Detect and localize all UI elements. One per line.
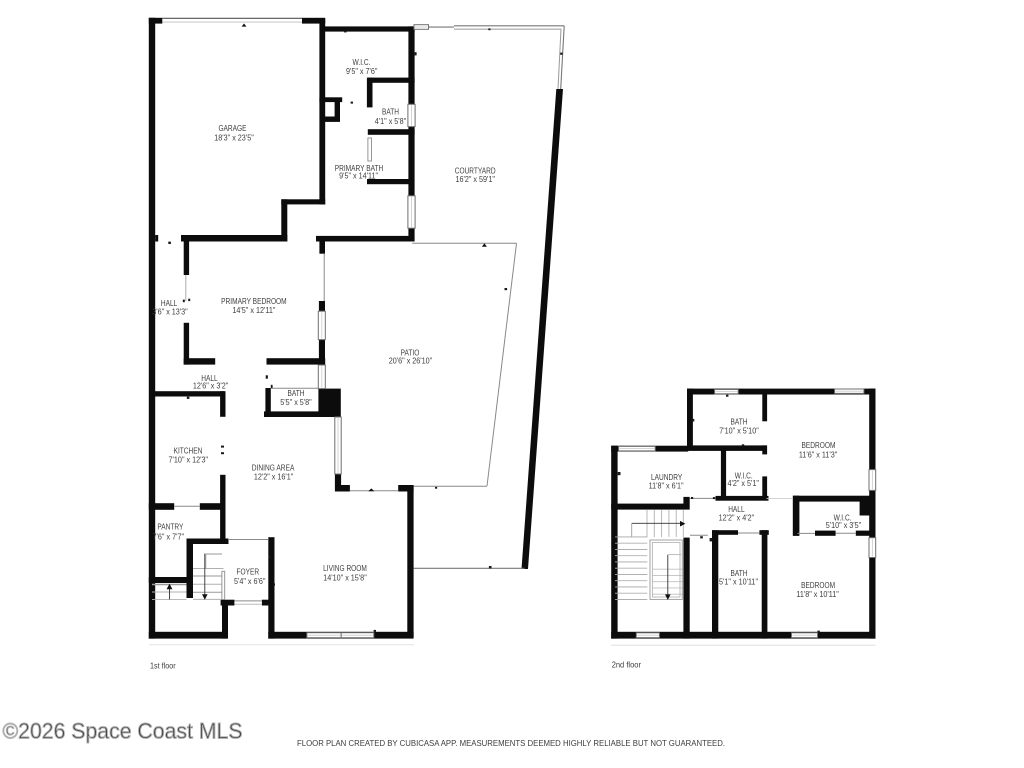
svg-text:BATH: BATH xyxy=(382,108,399,117)
svg-text:KITCHEN: KITCHEN xyxy=(174,447,203,456)
svg-text:3'6" x 13'3": 3'6" x 13'3" xyxy=(152,307,188,316)
svg-text:14'5" x 12'11": 14'5" x 12'11" xyxy=(232,306,275,315)
svg-text:1st floor: 1st floor xyxy=(150,661,176,671)
svg-text:2nd floor: 2nd floor xyxy=(612,659,642,669)
svg-text:FLOOR PLAN CREATED BY CUBICASA: FLOOR PLAN CREATED BY CUBICASA APP. MEAS… xyxy=(297,739,725,748)
svg-text:5'10" x 3'5": 5'10" x 3'5" xyxy=(826,521,862,530)
svg-text:4'1" x 5'8": 4'1" x 5'8" xyxy=(375,117,407,126)
svg-text:12'6" x 3'2": 12'6" x 3'2" xyxy=(193,382,229,391)
svg-text:5'4" x 6'6": 5'4" x 6'6" xyxy=(234,577,266,586)
svg-text:7'10" x 5'10": 7'10" x 5'10" xyxy=(719,426,759,435)
svg-text:11'8" x 6'1": 11'8" x 6'1" xyxy=(649,482,684,491)
svg-text:20'6" x 26'10": 20'6" x 26'10" xyxy=(389,357,433,366)
svg-text:BEDROOM: BEDROOM xyxy=(801,581,835,590)
svg-text:7'6" x 7'7": 7'6" x 7'7" xyxy=(153,532,185,541)
svg-text:11'8" x 10'11": 11'8" x 10'11" xyxy=(796,590,839,599)
svg-text:14'10" x 15'8": 14'10" x 15'8" xyxy=(323,574,367,583)
svg-text:BEDROOM: BEDROOM xyxy=(802,441,836,450)
svg-text:BATH: BATH xyxy=(731,418,748,427)
svg-text:5'1" x 10'11": 5'1" x 10'11" xyxy=(719,577,758,586)
svg-text:16'2" x 59'1": 16'2" x 59'1" xyxy=(455,175,495,184)
svg-text:9'5" x 7'6": 9'5" x 7'6" xyxy=(346,67,378,76)
svg-text:GARAGE: GARAGE xyxy=(218,124,246,133)
svg-text:BATH: BATH xyxy=(288,389,305,398)
svg-text:LIVING ROOM: LIVING ROOM xyxy=(323,564,367,573)
svg-text:11'6" x 11'3": 11'6" x 11'3" xyxy=(799,450,838,459)
svg-text:DINING AREA: DINING AREA xyxy=(252,464,295,473)
svg-text:9'5" x 14'11": 9'5" x 14'11" xyxy=(339,172,378,181)
svg-text:12'2" x 4'2": 12'2" x 4'2" xyxy=(719,513,755,522)
svg-text:12'2" x 16'1": 12'2" x 16'1" xyxy=(254,473,294,482)
svg-text:PRIMARY BEDROOM: PRIMARY BEDROOM xyxy=(221,297,287,306)
svg-text:©2026 Space Coast MLS: ©2026 Space Coast MLS xyxy=(3,719,243,744)
svg-text:FOYER: FOYER xyxy=(237,567,260,576)
svg-text:7'10" x 12'3": 7'10" x 12'3" xyxy=(169,455,209,464)
svg-text:LAUNDRY: LAUNDRY xyxy=(651,473,683,482)
svg-text:W.I.C.: W.I.C. xyxy=(353,58,371,67)
svg-text:18'3" x 23'5": 18'3" x 23'5" xyxy=(214,134,254,143)
svg-text:5'5" x 5'8": 5'5" x 5'8" xyxy=(280,398,312,407)
svg-text:4'2" x 5'1": 4'2" x 5'1" xyxy=(727,479,759,488)
svg-text:PANTRY: PANTRY xyxy=(157,522,184,531)
